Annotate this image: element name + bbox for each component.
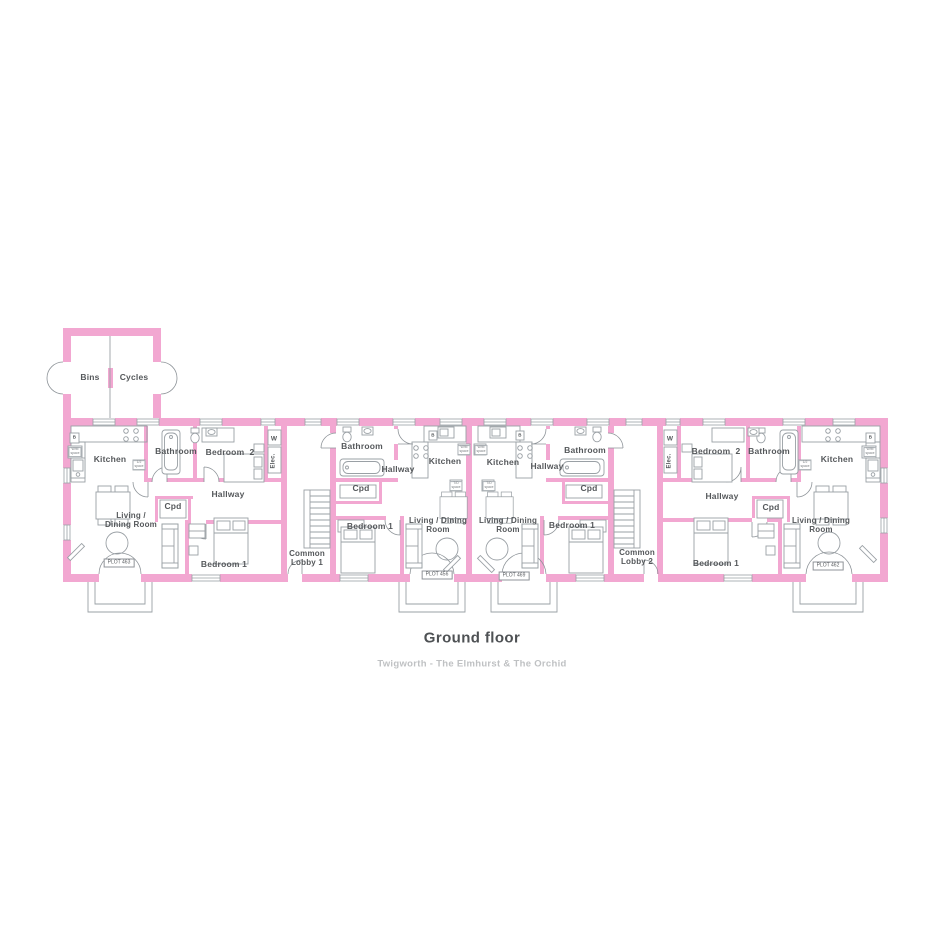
stairs-common-lobby-2	[614, 490, 640, 548]
stairs-common-lobby-1	[304, 490, 330, 548]
floor-plan-svg	[0, 0, 945, 945]
development-subtitle: Twigworth - The Elmhurst & The Orchid	[377, 659, 566, 670]
wall-openings	[63, 362, 852, 582]
floor-title: Ground floor	[424, 630, 520, 647]
porches	[88, 582, 863, 612]
floorplan-page: BinsCyclesKitchenBathroomBedroom 2WElec.…	[0, 0, 945, 945]
